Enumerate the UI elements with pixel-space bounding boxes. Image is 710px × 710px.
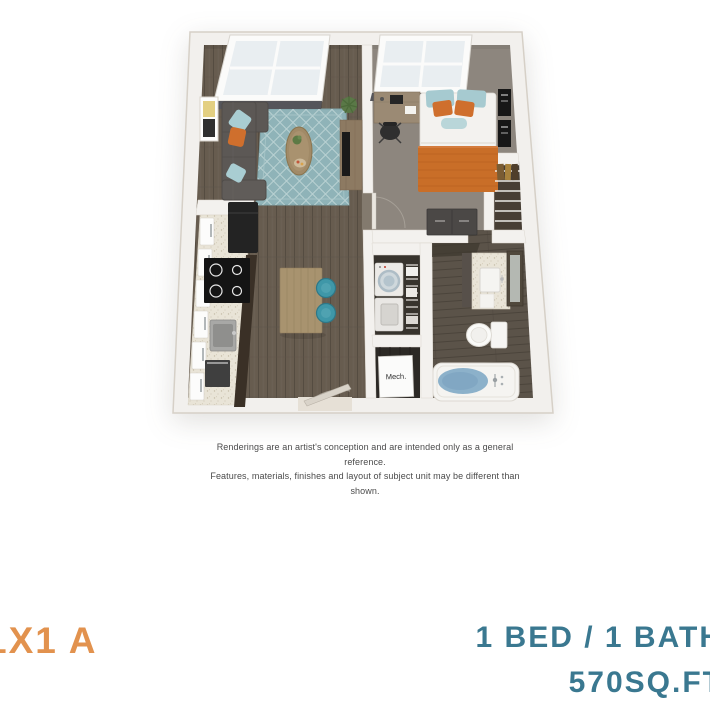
bar-stool [317,304,336,323]
laptop [390,95,403,104]
dresser [427,209,477,235]
bathtub [433,363,519,401]
bedroom-window [370,35,472,101]
toilet [467,322,508,348]
disclaimer-line-2: Features, materials, finishes and layout… [205,469,525,498]
bedroom-doorway-floor [362,193,373,230]
wall-art [200,97,218,141]
kitchen-sink [210,320,236,351]
plan-name: 1X1 A [0,620,97,662]
living-bedroom-wall-upper [362,45,373,193]
living-room-window [212,35,330,109]
mech-label: Mech. [386,372,407,382]
washer [375,263,403,296]
dryer [375,298,403,331]
floor-plan-rendering: Mech. [150,25,560,435]
plan-specs: 1 BED / 1 BATH 570SQ.FT [476,615,710,705]
floor-plan-page: { "palette": { "plan_name_orange": "#E29… [0,0,710,710]
towels [406,288,417,297]
tub-faucet [493,378,497,382]
area-label: 570SQ.FT [476,660,710,705]
vanity-sink [480,268,500,292]
bed-pillow-orange [454,100,475,117]
hanging-clothes [497,164,519,180]
laundry-mech-wall [372,335,421,347]
disclaimer: Renderings are an artist's conception an… [205,440,525,498]
hand-towel [480,294,494,308]
desk [374,92,420,123]
faucet [232,331,236,335]
serving-tray [294,159,306,168]
refrigerator [228,202,258,253]
bed [418,89,498,192]
bedroom-door-leaf [372,193,376,229]
tv-console [340,120,362,190]
coffee-table [286,127,312,175]
towels [406,267,418,276]
vanity-faucet [500,277,504,281]
bathroom-mirror [507,251,523,306]
towels [406,316,418,324]
vanity [462,253,510,309]
orange-blanket [418,146,498,192]
bed-pillow-orange [432,100,453,117]
bed-bath-label: 1 BED / 1 BATH [476,615,710,660]
desk-chair [379,122,401,143]
tv [342,132,350,176]
laundry-shelving [406,265,418,328]
papers [405,106,416,114]
cooktop [204,258,250,303]
laundry-bathroom-wall [420,243,433,398]
bathroom-top-wall [492,230,526,243]
disclaimer-line-1: Renderings are an artist's conception an… [205,440,525,469]
lumbar-pillow [441,118,467,129]
bar-stool [317,279,336,298]
dishwasher [205,360,230,387]
